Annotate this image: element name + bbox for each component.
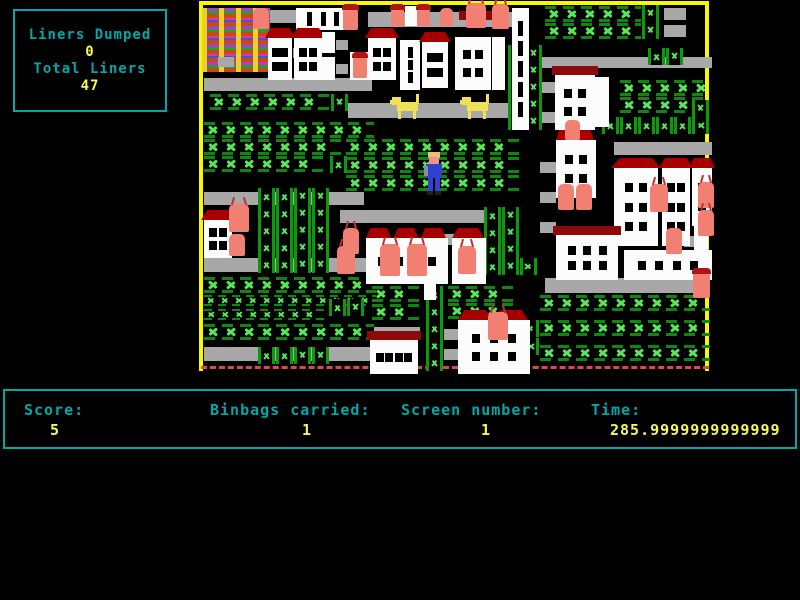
time-value: 285.9999999999999: [610, 421, 781, 439]
liners-dumped-value: 0: [85, 44, 94, 60]
binbags-value: 1: [302, 421, 312, 439]
score-value: 5: [50, 421, 60, 439]
playfield-bottom-boundary: [201, 366, 709, 369]
score-label: Score:: [24, 401, 84, 419]
binbags-label: Binbags carried:: [210, 401, 371, 419]
time-label: Time:: [591, 401, 641, 419]
liners-dumped-label: Liners Dumped: [29, 27, 152, 43]
game-screen: Liners Dumped 0 Total Liners 47 Score: 5…: [0, 0, 800, 600]
liners-hud-panel: Liners Dumped 0 Total Liners 47: [13, 9, 167, 112]
status-bar: Score: 5 Binbags carried: 1 Screen numbe…: [3, 389, 797, 449]
screen-number-label: Screen number:: [401, 401, 541, 419]
playfield[interactable]: [199, 1, 709, 371]
total-liners-value: 47: [81, 78, 100, 94]
screen-number-value: 1: [481, 421, 491, 439]
total-liners-label: Total Liners: [33, 61, 146, 77]
